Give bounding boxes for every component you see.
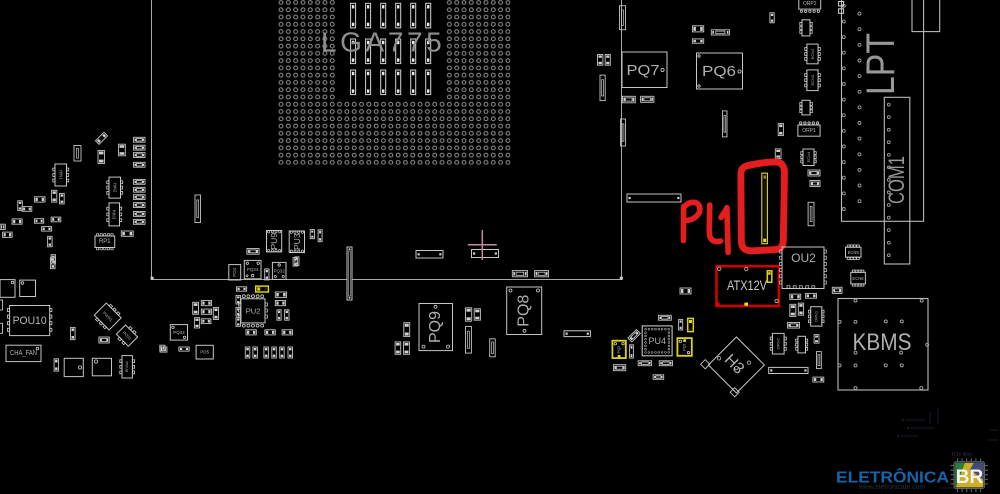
- svg-text:PQ34: PQ34: [247, 267, 259, 272]
- svg-text:ORN2: ORN2: [776, 337, 781, 349]
- svg-text:PQ2: PQ2: [617, 346, 621, 354]
- svg-text:PQ7: PQ7: [627, 62, 660, 79]
- svg-text:PQ6: PQ6: [702, 63, 736, 80]
- svg-text:CHA_FAN: CHA_FAN: [10, 350, 37, 357]
- svg-text:KBMS: KBMS: [853, 329, 912, 356]
- svg-text:PQ8: PQ8: [516, 295, 533, 327]
- svg-text:PQ1: PQ1: [682, 343, 686, 351]
- svg-text:PU3: PU3: [292, 233, 302, 250]
- svg-text:HIN2: HIN2: [112, 183, 117, 193]
- svg-text:PQ32: PQ32: [274, 269, 286, 274]
- svg-text:BR: BR: [956, 467, 984, 488]
- svg-text:ORN1: ORN1: [814, 310, 819, 322]
- svg-text:HIN1: HIN1: [58, 170, 63, 180]
- svg-text:ORP1: ORP1: [802, 128, 816, 134]
- svg-text:COM1: COM1: [884, 156, 909, 204]
- svg-text:POU10: POU10: [13, 315, 47, 327]
- svg-text:ECN8: ECN8: [852, 276, 864, 281]
- svg-text:PU9: PU9: [269, 233, 279, 250]
- svg-text:ECN3: ECN3: [810, 74, 815, 85]
- svg-text:RP1: RP1: [99, 239, 111, 245]
- svg-text:LPT: LPT: [859, 33, 903, 95]
- svg-text:OU2: OU2: [791, 251, 816, 265]
- svg-text:HIN3: HIN3: [112, 210, 117, 220]
- svg-text:PQ33: PQ33: [173, 330, 185, 335]
- svg-text:POU8: POU8: [125, 361, 130, 373]
- svg-text:ORP2: ORP2: [803, 1, 817, 7]
- svg-text:PU2: PU2: [246, 307, 261, 316]
- svg-text:ATX12V: ATX12V: [727, 277, 768, 293]
- svg-text:ECN2: ECN2: [810, 48, 815, 59]
- svg-text:PQ9: PQ9: [427, 311, 444, 343]
- svg-text:R3x 40m: R3x 40m: [952, 452, 972, 458]
- svg-text:www.eletronicabr.com: www.eletronicabr.com: [858, 484, 925, 491]
- svg-text:LGA775: LGA775: [321, 27, 445, 58]
- svg-text:PO4: PO4: [232, 267, 237, 276]
- svg-text:PD5: PD5: [200, 350, 209, 355]
- svg-text:ECN4: ECN4: [806, 151, 811, 162]
- svg-text:PU4: PU4: [648, 336, 666, 346]
- svg-text:ECN5: ECN5: [848, 250, 860, 255]
